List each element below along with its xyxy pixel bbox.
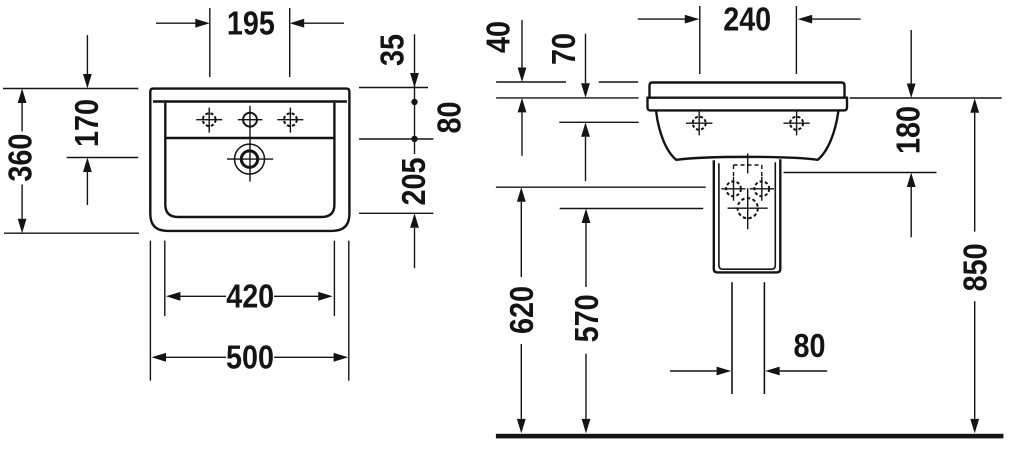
svg-text:240: 240: [723, 0, 771, 37]
svg-text:40: 40: [479, 21, 516, 53]
svg-text:500: 500: [226, 339, 274, 376]
svg-text:570: 570: [568, 294, 605, 342]
svg-text:80: 80: [430, 102, 467, 134]
svg-text:170: 170: [68, 99, 105, 147]
svg-text:420: 420: [226, 278, 274, 315]
svg-text:360: 360: [2, 134, 39, 182]
svg-text:80: 80: [794, 327, 826, 364]
svg-text:180: 180: [890, 106, 927, 154]
svg-text:195: 195: [227, 4, 275, 41]
svg-text:35: 35: [374, 34, 411, 66]
svg-text:70: 70: [545, 33, 582, 65]
svg-text:620: 620: [503, 286, 540, 334]
svg-text:850: 850: [956, 243, 993, 291]
svg-text:205: 205: [395, 158, 432, 206]
